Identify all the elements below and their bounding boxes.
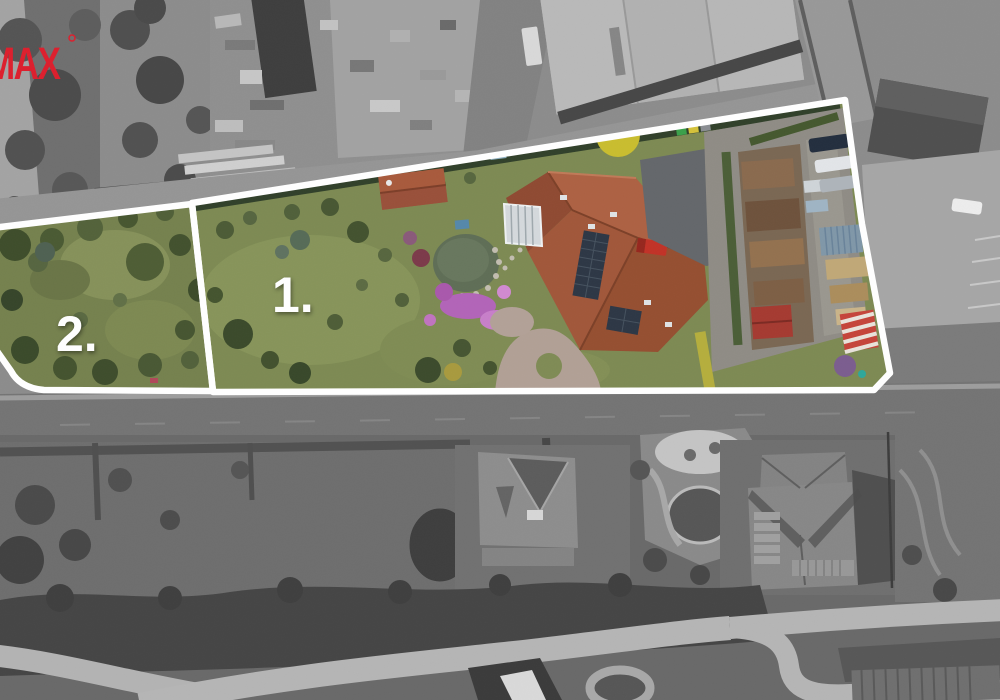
red-roof-shed bbox=[751, 305, 793, 340]
striped-tarp bbox=[840, 310, 879, 352]
brand-logo: MAX bbox=[0, 38, 61, 89]
blue-leanto bbox=[819, 224, 863, 256]
solar-array bbox=[792, 560, 854, 576]
ribbed-building bbox=[851, 665, 1000, 700]
aerial-photo-canvas: 1. 2. MAX bbox=[0, 0, 1000, 700]
purple-tree bbox=[834, 355, 856, 377]
parcel-2-label: 2. bbox=[56, 306, 98, 362]
cul-de-sac bbox=[590, 670, 650, 700]
right-house bbox=[720, 432, 1000, 602]
aerial-parcel-screenshot: 1. 2. MAX bbox=[0, 0, 1000, 700]
conservatory bbox=[504, 204, 542, 246]
brand-logo-text: MAX bbox=[0, 38, 61, 89]
center-house bbox=[455, 445, 630, 590]
lower-neighbourhood bbox=[0, 428, 1000, 700]
parcel-1-label: 1. bbox=[272, 267, 314, 323]
